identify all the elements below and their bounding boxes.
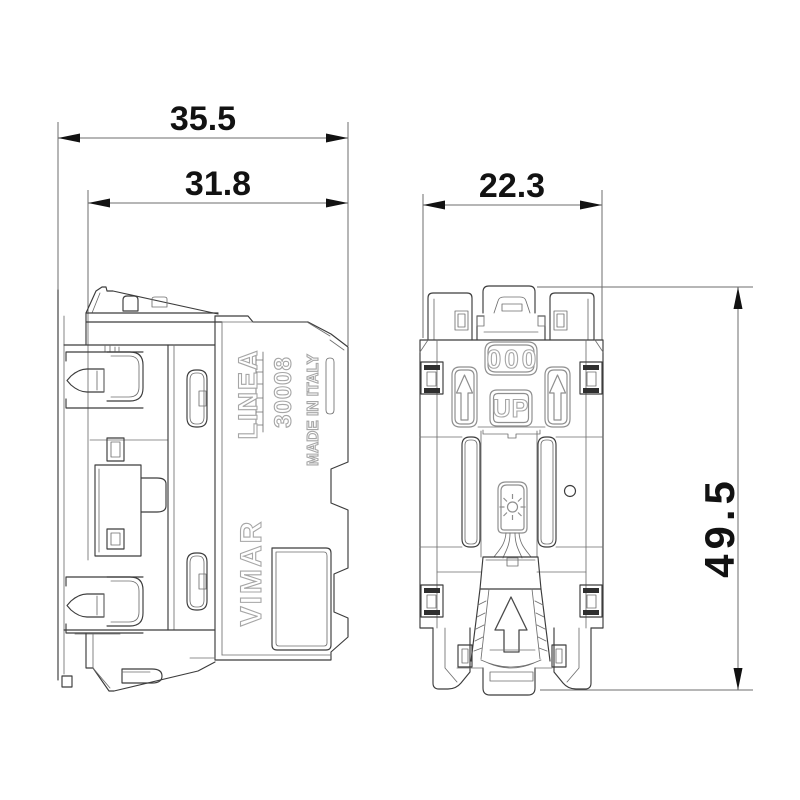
module-width-label: 22.3 [479, 167, 545, 205]
overall-width-label: 35.5 [170, 100, 236, 138]
code-marking: 000 [487, 344, 539, 374]
up-arrow-icon [457, 375, 473, 420]
screw-hole [565, 486, 576, 497]
left-wing [428, 293, 472, 340]
brand-marking: VIMAR [235, 520, 268, 627]
orientation-marking: UP [493, 395, 530, 423]
rear-view: 000 UP [420, 286, 603, 695]
arrow-up-large-icon [495, 597, 527, 652]
vimar-module-technical-drawing: 35.5 31.8 22.3 49.5 [0, 0, 800, 800]
up-arrow-icon [550, 375, 566, 420]
series-marking: LINEA [233, 349, 263, 440]
center-block [90, 438, 168, 556]
middle-tab-left [462, 437, 480, 547]
left-up-arrow-badge [452, 367, 477, 427]
side-clip-upper-right [580, 362, 602, 394]
module-height-label: 49.5 [696, 476, 743, 578]
lamp-icon [500, 494, 526, 520]
side-clip-lower-left [421, 585, 443, 617]
side-housing-panel: LINEA 30008 MADE IN ITALY VIMAR [215, 316, 348, 660]
dimension-module-height: 49.5 [537, 287, 753, 690]
upper-slot [187, 370, 207, 427]
up-badge: UP [490, 390, 532, 426]
dimension-overall-width: 35.5 [58, 100, 348, 346]
right-wing [550, 293, 594, 340]
lower-slot [187, 553, 207, 610]
dimension-module-width: 22.3 [423, 167, 602, 340]
middle-tab-right [538, 437, 556, 547]
right-up-arrow-badge [545, 367, 570, 427]
origin-marking: MADE IN ITALY [305, 353, 322, 466]
side-view: LINEA 30008 MADE IN ITALY VIMAR [58, 287, 348, 691]
side-clip-upper-left [421, 362, 443, 394]
upper-contact-plunger [66, 352, 143, 408]
code-badge: 000 [485, 342, 539, 375]
bottom-wedge [471, 557, 550, 668]
dimension-recess-width: 31.8 [88, 165, 348, 314]
drawing-canvas: 35.5 31.8 22.3 49.5 [0, 0, 800, 800]
recess-width-label: 31.8 [185, 165, 251, 203]
top-tab [483, 286, 535, 313]
lower-contact-plunger [66, 577, 143, 633]
side-clip-lower-right [580, 585, 602, 617]
bottom-tab [457, 668, 552, 695]
bottom-latch [64, 630, 215, 691]
model-marking: 30008 [270, 356, 297, 428]
lamp-badge [494, 482, 531, 566]
